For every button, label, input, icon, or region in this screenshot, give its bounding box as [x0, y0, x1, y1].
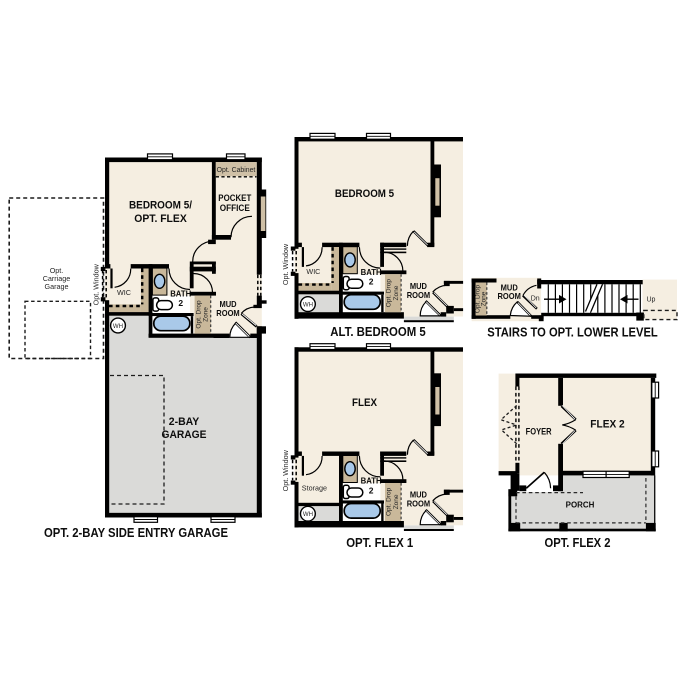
svg-text:WH: WH [303, 302, 313, 309]
svg-text:BATH: BATH [361, 267, 382, 277]
svg-text:STAIRS TO OPT. LOWER LEVEL: STAIRS TO OPT. LOWER LEVEL [487, 324, 658, 339]
svg-text:FLEX: FLEX [352, 397, 378, 409]
svg-text:2: 2 [178, 298, 183, 308]
svg-text:Zone: Zone [203, 307, 210, 322]
svg-text:PORCH: PORCH [566, 499, 595, 509]
svg-text:Up: Up [647, 297, 656, 304]
svg-text:OPT. FLEX 2: OPT. FLEX 2 [545, 535, 611, 550]
svg-text:FLEX 2: FLEX 2 [590, 419, 624, 431]
svg-text:POCKET: POCKET [218, 193, 251, 203]
svg-text:BEDROOM 5: BEDROOM 5 [335, 188, 394, 200]
svg-text:Storage: Storage [302, 484, 327, 493]
svg-text:Opt. Window: Opt. Window [281, 449, 290, 491]
svg-text:2: 2 [369, 277, 374, 287]
svg-text:OPT. FLEX: OPT. FLEX [134, 213, 187, 225]
svg-text:2: 2 [369, 485, 374, 495]
svg-text:WIC: WIC [117, 288, 131, 297]
svg-text:Opt. Drop: Opt. Drop [386, 279, 393, 308]
svg-text:Opt. Window: Opt. Window [281, 243, 290, 285]
svg-text:Zone: Zone [393, 285, 400, 300]
svg-text:OPT. FLEX 1: OPT. FLEX 1 [346, 535, 413, 550]
svg-text:OFFICE: OFFICE [220, 203, 250, 213]
svg-text:Zone: Zone [393, 494, 400, 509]
svg-text:2-BAY: 2-BAY [169, 416, 200, 428]
svg-text:ROOM: ROOM [407, 499, 430, 509]
svg-text:ROOM: ROOM [407, 290, 430, 300]
svg-text:Opt. Cabinet: Opt. Cabinet [217, 167, 256, 174]
svg-text:FOYER: FOYER [526, 426, 552, 436]
svg-text:Garage: Garage [45, 282, 69, 291]
svg-text:Opt. Drop: Opt. Drop [195, 300, 202, 329]
svg-text:GARAGE: GARAGE [162, 429, 207, 441]
svg-text:ROOM: ROOM [498, 291, 521, 301]
svg-text:WH: WH [113, 323, 123, 330]
svg-text:Zone: Zone [480, 291, 487, 306]
svg-text:BATH: BATH [170, 288, 191, 298]
svg-text:Opt. Window: Opt. Window [91, 263, 100, 305]
svg-text:Opt. Drop: Opt. Drop [386, 487, 393, 516]
svg-text:ROOM: ROOM [216, 308, 239, 318]
svg-text:WH: WH [303, 511, 313, 518]
svg-text:WIC: WIC [306, 267, 320, 276]
svg-text:Dn: Dn [531, 295, 540, 302]
svg-text:OPT. 2-BAY SIDE ENTRY GARAGE: OPT. 2-BAY SIDE ENTRY GARAGE [44, 525, 228, 540]
svg-text:ALT. BEDROOM 5: ALT. BEDROOM 5 [330, 324, 426, 339]
svg-text:BEDROOM 5/: BEDROOM 5/ [129, 200, 192, 212]
svg-text:BATH: BATH [361, 476, 382, 486]
